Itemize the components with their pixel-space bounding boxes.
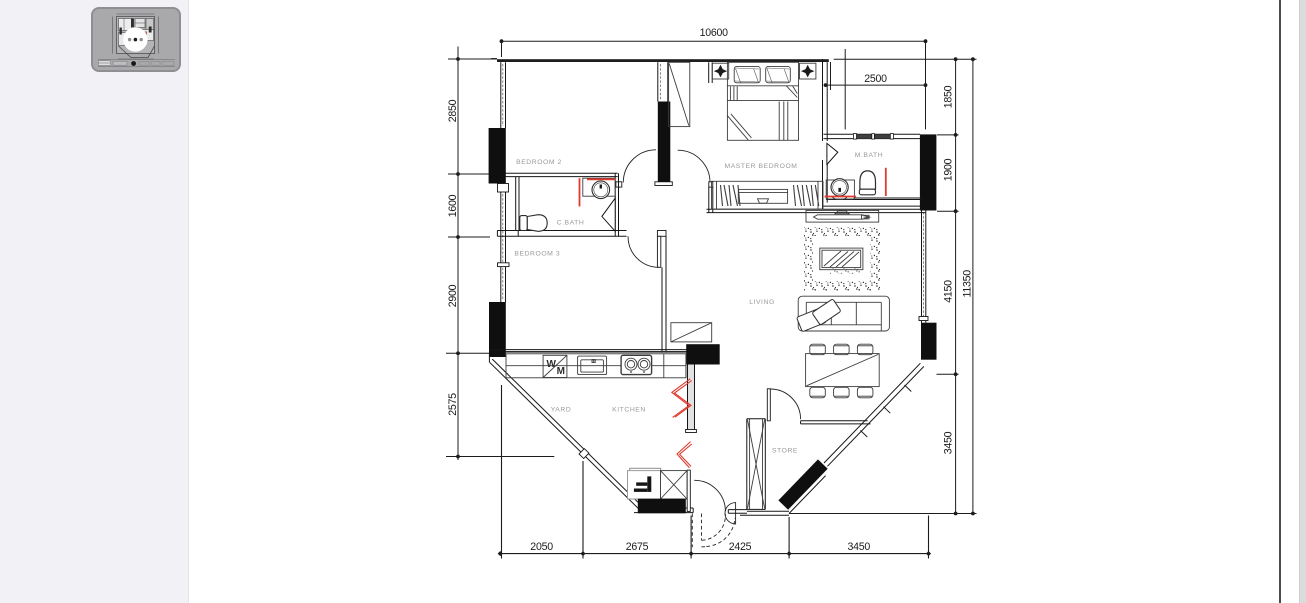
svg-text:M: M: [557, 366, 565, 377]
svg-text:2425: 2425: [729, 541, 752, 553]
svg-text:3450: 3450: [848, 541, 871, 553]
svg-text:2500: 2500: [864, 73, 887, 85]
svg-text:BEDROOM 3: BEDROOM 3: [514, 251, 560, 258]
svg-text:2675: 2675: [626, 541, 649, 553]
svg-text:BEDROOM 2: BEDROOM 2: [516, 159, 562, 166]
svg-text:3450: 3450: [942, 431, 954, 454]
svg-text:C.BATH: C.BATH: [557, 220, 585, 227]
svg-text:M.BATH: M.BATH: [855, 152, 883, 159]
svg-text:2050: 2050: [530, 541, 553, 553]
svg-text:2850: 2850: [447, 99, 459, 122]
svg-text:KITCHEN: KITCHEN: [612, 407, 646, 414]
svg-text:LIVING: LIVING: [749, 299, 775, 306]
svg-text:1900: 1900: [942, 158, 954, 181]
svg-text:1850: 1850: [942, 85, 954, 108]
svg-text:2575: 2575: [447, 393, 459, 416]
svg-text:W: W: [546, 359, 556, 370]
svg-text:10600: 10600: [700, 27, 729, 39]
svg-text:2900: 2900: [447, 284, 459, 307]
svg-text:STORE: STORE: [772, 448, 798, 455]
svg-text:4150: 4150: [942, 280, 954, 303]
svg-text:YARD: YARD: [551, 407, 572, 414]
svg-text:1600: 1600: [447, 194, 459, 217]
svg-text:MASTER BEDROOM: MASTER BEDROOM: [724, 163, 797, 170]
svg-text:11350: 11350: [961, 270, 973, 298]
